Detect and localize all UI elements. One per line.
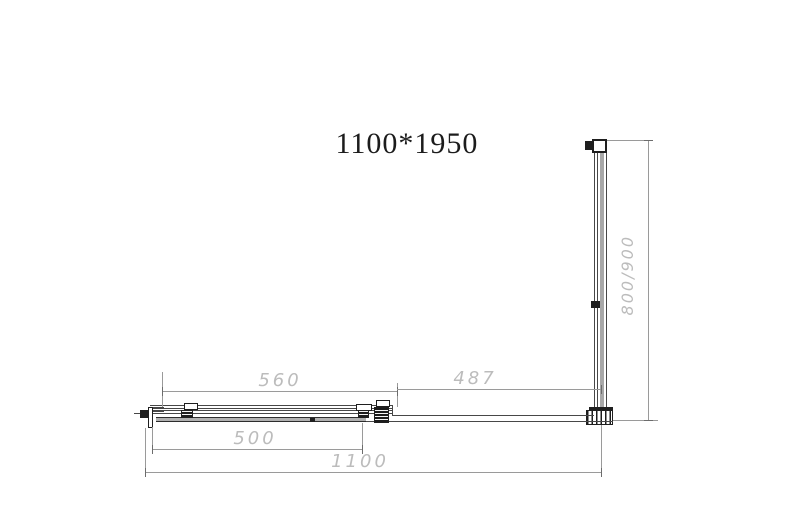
left-profile-step <box>153 411 164 412</box>
left-profile-stub <box>134 413 140 414</box>
dimension-tick <box>145 468 146 477</box>
side-panel-line <box>594 150 595 423</box>
dimension-label-487: 487 <box>435 370 515 388</box>
side-panel-glass <box>600 153 604 410</box>
side-panel-line <box>597 150 598 423</box>
fixed-rail-line <box>392 415 594 416</box>
side-panel-line <box>606 150 607 412</box>
sliding-glass-door <box>156 417 366 422</box>
dimension-label-500: 500 <box>215 430 295 448</box>
dimension-line <box>648 140 649 421</box>
roller-bracket <box>376 400 390 407</box>
dimension-tick <box>152 445 153 454</box>
side-panel-top-bracket <box>592 139 607 153</box>
dimension-tick <box>601 385 602 394</box>
dimension-tick <box>601 468 602 477</box>
dimension-label-1100: 1100 <box>320 453 400 471</box>
door-seam <box>310 418 315 422</box>
dimension-tick <box>644 420 653 421</box>
dimension-tick <box>162 387 163 396</box>
roller-block <box>374 407 389 423</box>
dimension-line <box>152 449 363 450</box>
bottom-track-line <box>366 421 613 422</box>
dimension-tick <box>644 140 653 141</box>
left-wall-block <box>140 410 148 418</box>
dimension-line <box>162 391 398 392</box>
roller-bracket <box>184 403 198 410</box>
dimension-line <box>397 389 601 390</box>
wall-profile-bracket <box>586 410 613 425</box>
roller-block <box>181 410 193 418</box>
side-panel-mid-clip <box>591 301 600 308</box>
dimension-label-560: 560 <box>240 372 320 390</box>
dimension-line <box>145 472 602 473</box>
side-panel-top-clip <box>585 141 592 150</box>
technical-drawing-canvas: 1100*1950 <box>0 0 800 526</box>
drawing-title: 1100*1950 <box>300 127 514 161</box>
dimension-label-800-900: 800/900 <box>620 235 636 315</box>
left-profile-step <box>153 407 164 408</box>
roller-block <box>358 410 369 418</box>
